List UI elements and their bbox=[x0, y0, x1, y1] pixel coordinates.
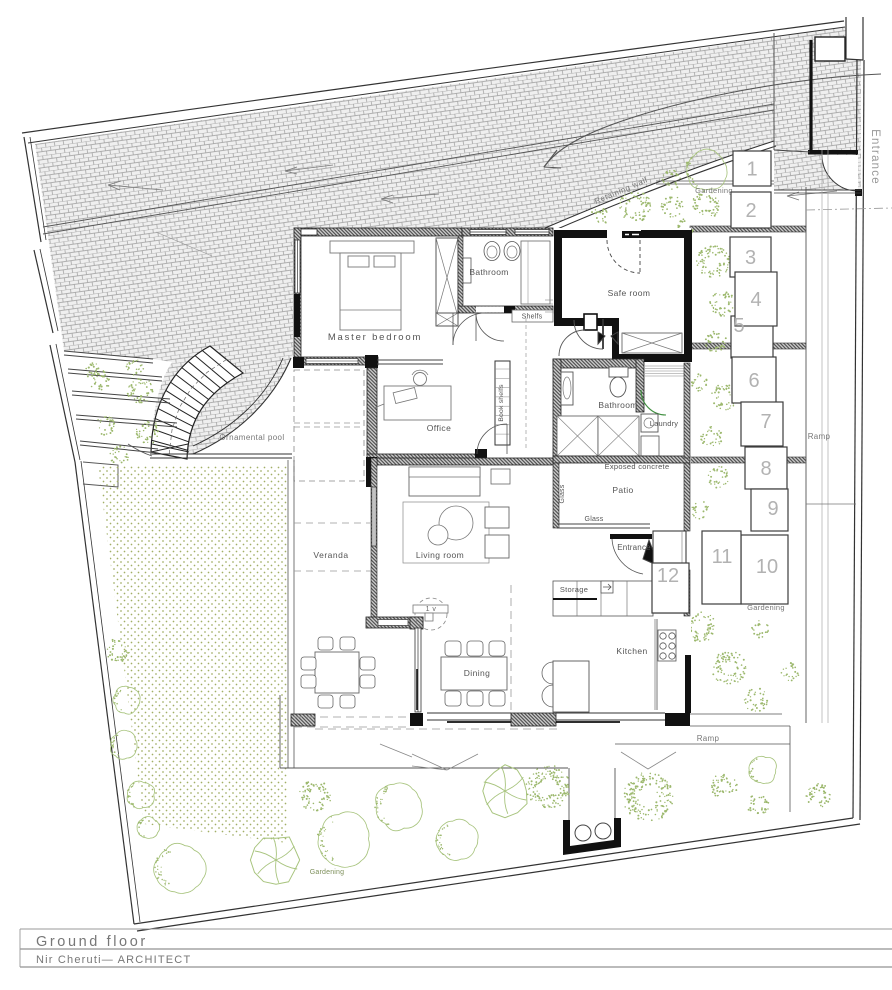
svg-text:11: 11 bbox=[712, 546, 733, 568]
svg-text:Gardening: Gardening bbox=[695, 186, 733, 195]
svg-text:Veranda: Veranda bbox=[313, 550, 348, 560]
svg-text:Laundry: Laundry bbox=[650, 419, 679, 428]
svg-text:Office: Office bbox=[427, 423, 451, 433]
svg-text:Master bedroom: Master bedroom bbox=[328, 332, 422, 343]
svg-text:10: 10 bbox=[756, 556, 778, 578]
svg-text:Kitchen: Kitchen bbox=[616, 646, 647, 656]
svg-text:Storage: Storage bbox=[560, 585, 588, 594]
svg-text:1 v: 1 v bbox=[426, 606, 437, 613]
svg-text:Ornamental pool: Ornamental pool bbox=[219, 433, 284, 442]
svg-text:Patio: Patio bbox=[612, 485, 633, 495]
svg-text:Glass: Glass bbox=[585, 516, 604, 523]
svg-text:Entrance: Entrance bbox=[617, 543, 651, 552]
svg-text:8: 8 bbox=[760, 458, 771, 480]
svg-text:7: 7 bbox=[760, 411, 771, 433]
svg-text:Bathroom: Bathroom bbox=[469, 267, 508, 277]
svg-text:2: 2 bbox=[745, 200, 756, 222]
svg-text:Glass: Glass bbox=[559, 484, 566, 503]
svg-text:Entrance: Entrance bbox=[869, 129, 881, 185]
svg-text:6: 6 bbox=[748, 370, 759, 392]
svg-text:Safe room: Safe room bbox=[608, 288, 651, 298]
svg-text:Book shelfs: Book shelfs bbox=[498, 384, 505, 422]
svg-text:Dining: Dining bbox=[464, 668, 491, 678]
svg-text:Gardening: Gardening bbox=[310, 869, 345, 876]
svg-text:Ramp: Ramp bbox=[808, 432, 831, 441]
svg-text:Living room: Living room bbox=[416, 550, 464, 560]
svg-text:3: 3 bbox=[745, 247, 756, 269]
svg-text:Shelfs: Shelfs bbox=[522, 314, 543, 321]
svg-text:Bathroom: Bathroom bbox=[598, 400, 637, 410]
svg-text:1: 1 bbox=[746, 159, 757, 181]
svg-text:9: 9 bbox=[767, 498, 778, 520]
svg-text:Exposed concrete: Exposed concrete bbox=[605, 462, 670, 471]
svg-text:12: 12 bbox=[657, 565, 679, 587]
svg-text:5: 5 bbox=[733, 315, 744, 337]
svg-text:4: 4 bbox=[750, 289, 761, 311]
svg-text:Ramp: Ramp bbox=[697, 734, 720, 743]
svg-text:Ground floor: Ground floor bbox=[36, 934, 148, 950]
svg-text:Nir Cheruti— ARCHITECT: Nir Cheruti— ARCHITECT bbox=[36, 954, 191, 966]
